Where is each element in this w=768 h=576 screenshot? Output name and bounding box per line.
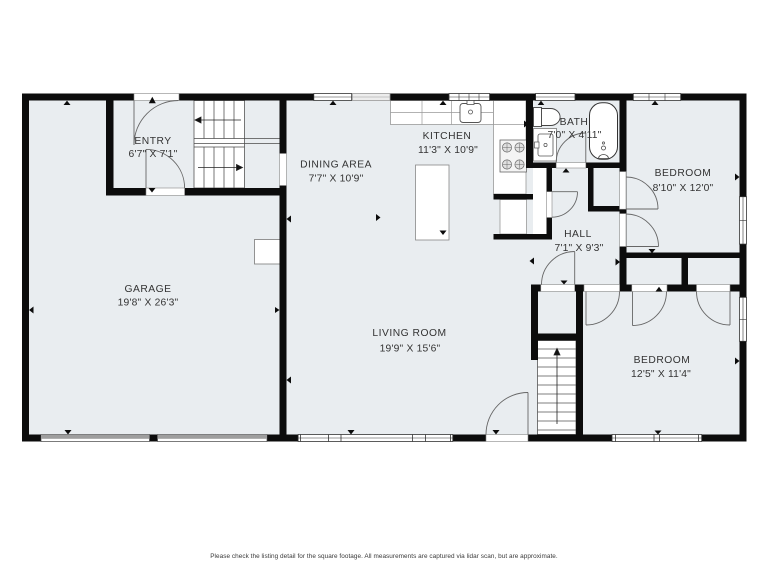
svg-text:Please check the listing detai: Please check the listing detail for the … — [210, 553, 558, 560]
svg-text:BATH: BATH — [560, 117, 589, 128]
svg-text:HALL: HALL — [564, 229, 592, 240]
svg-text:KITCHEN: KITCHEN — [423, 131, 472, 142]
svg-text:12'5" X 11'4": 12'5" X 11'4" — [631, 369, 691, 380]
svg-text:7'7" X 10'9": 7'7" X 10'9" — [309, 174, 364, 185]
svg-text:LIVING ROOM: LIVING ROOM — [372, 328, 446, 339]
svg-text:19'9" X 15'6": 19'9" X 15'6" — [380, 344, 441, 355]
svg-text:BEDROOM: BEDROOM — [655, 168, 712, 179]
svg-text:7'1" X 9'3": 7'1" X 9'3" — [555, 243, 604, 254]
svg-text:6'7" X 7'1": 6'7" X 7'1" — [129, 149, 178, 160]
svg-text:19'8" X 26'3": 19'8" X 26'3" — [118, 298, 179, 309]
svg-text:ENTRY: ENTRY — [134, 136, 171, 147]
svg-text:BEDROOM: BEDROOM — [634, 355, 691, 366]
svg-text:7'0" X 4'11": 7'0" X 4'11" — [547, 130, 601, 141]
svg-text:DINING AREA: DINING AREA — [300, 160, 372, 171]
svg-text:8'10" X 12'0": 8'10" X 12'0" — [653, 183, 714, 194]
svg-text:GARAGE: GARAGE — [124, 284, 171, 295]
svg-text:11'3" X 10'9": 11'3" X 10'9" — [418, 145, 478, 156]
